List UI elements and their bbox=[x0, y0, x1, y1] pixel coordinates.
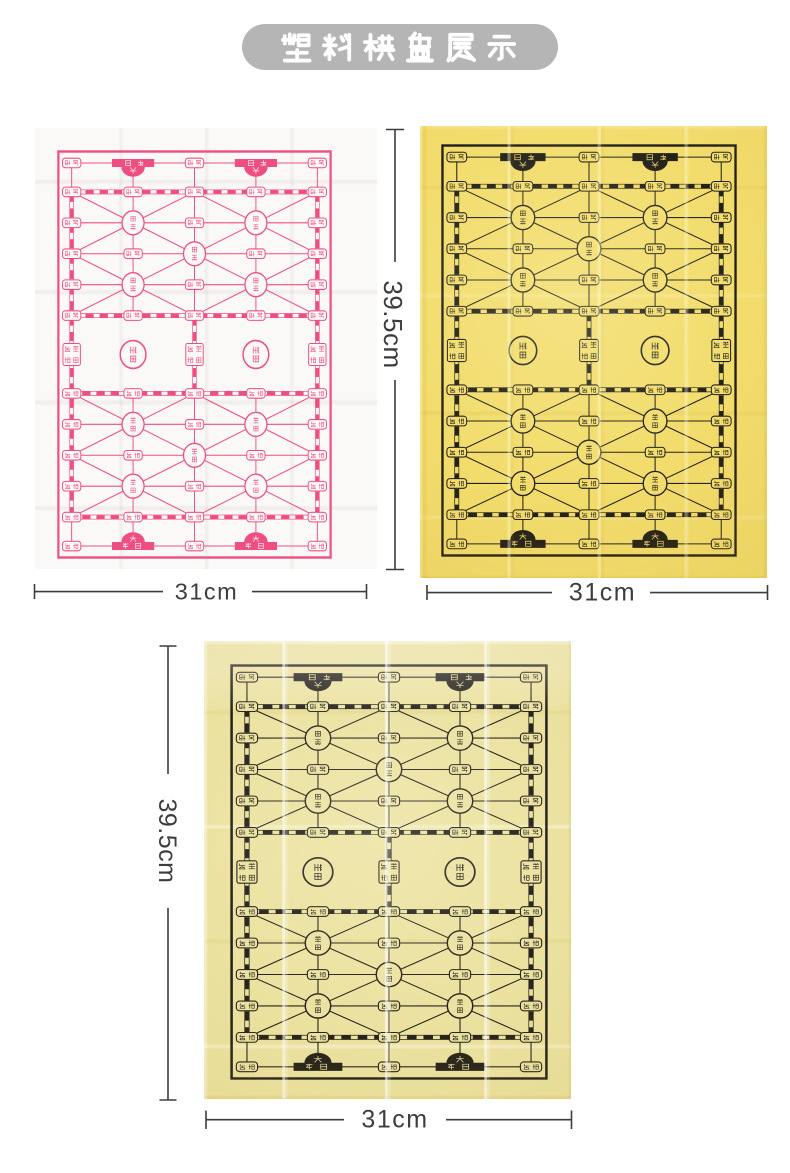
svg-text:39.5cm: 39.5cm bbox=[378, 280, 408, 368]
svg-text:39.5cm: 39.5cm bbox=[153, 799, 181, 884]
svg-text:31cm: 31cm bbox=[361, 1106, 428, 1134]
svg-text:31cm: 31cm bbox=[175, 579, 238, 605]
svg-text:31cm: 31cm bbox=[569, 579, 636, 607]
